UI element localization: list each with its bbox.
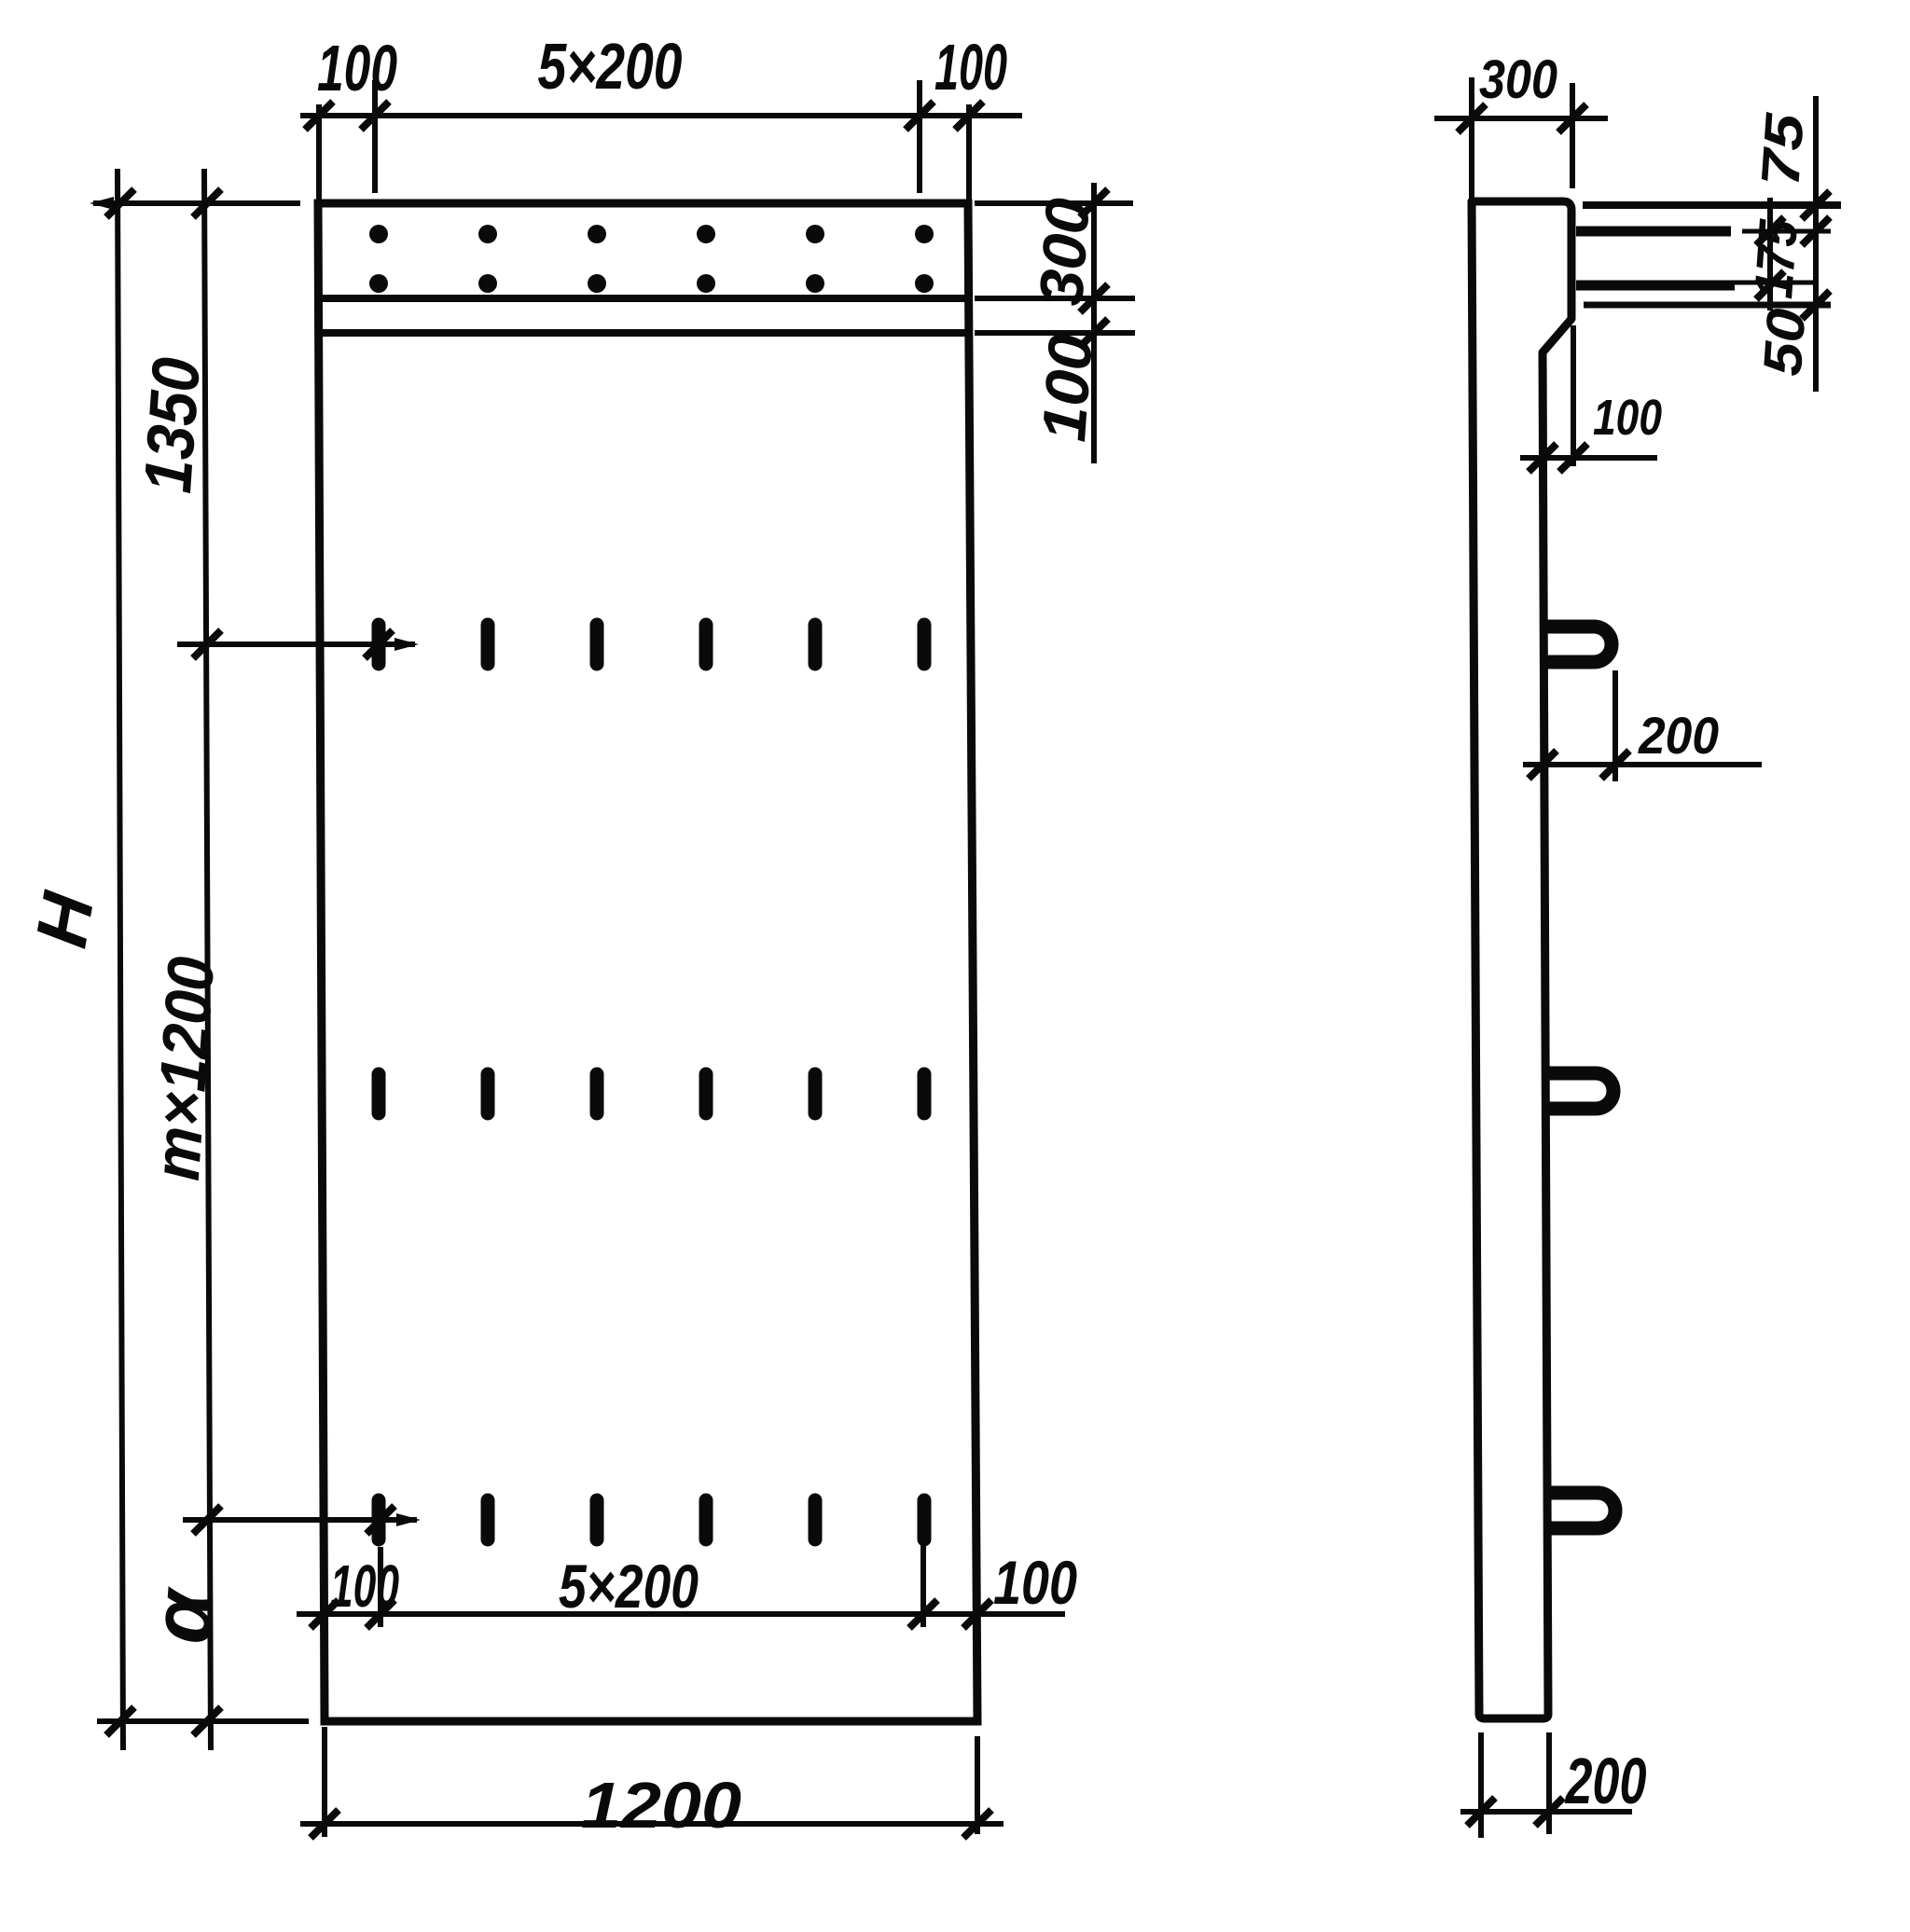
svg-text:1350: 1350	[131, 355, 215, 495]
svg-text:50: 50	[1752, 307, 1818, 378]
svg-text:200: 200	[1564, 1745, 1647, 1817]
svg-text:H: H	[20, 886, 110, 953]
svg-text:100: 100	[1593, 390, 1662, 446]
svg-text:175: 175	[1743, 217, 1809, 300]
svg-text:5×200: 5×200	[559, 1552, 699, 1621]
svg-text:100: 100	[1029, 332, 1105, 444]
svg-text:100: 100	[993, 1548, 1077, 1617]
svg-text:100: 100	[934, 31, 1007, 103]
svg-text:200: 200	[1638, 706, 1719, 765]
svg-text:300: 300	[1479, 49, 1557, 110]
svg-text:100: 100	[317, 32, 397, 104]
svg-text:m×1200: m×1200	[140, 955, 228, 1183]
svg-text:75: 75	[1750, 111, 1815, 188]
svg-text:100: 100	[330, 1552, 399, 1620]
svg-text:1200: 1200	[581, 1769, 741, 1842]
svg-text:α: α	[133, 1583, 232, 1647]
svg-text:5×200: 5×200	[538, 30, 683, 103]
svg-text:300: 300	[1026, 196, 1102, 308]
